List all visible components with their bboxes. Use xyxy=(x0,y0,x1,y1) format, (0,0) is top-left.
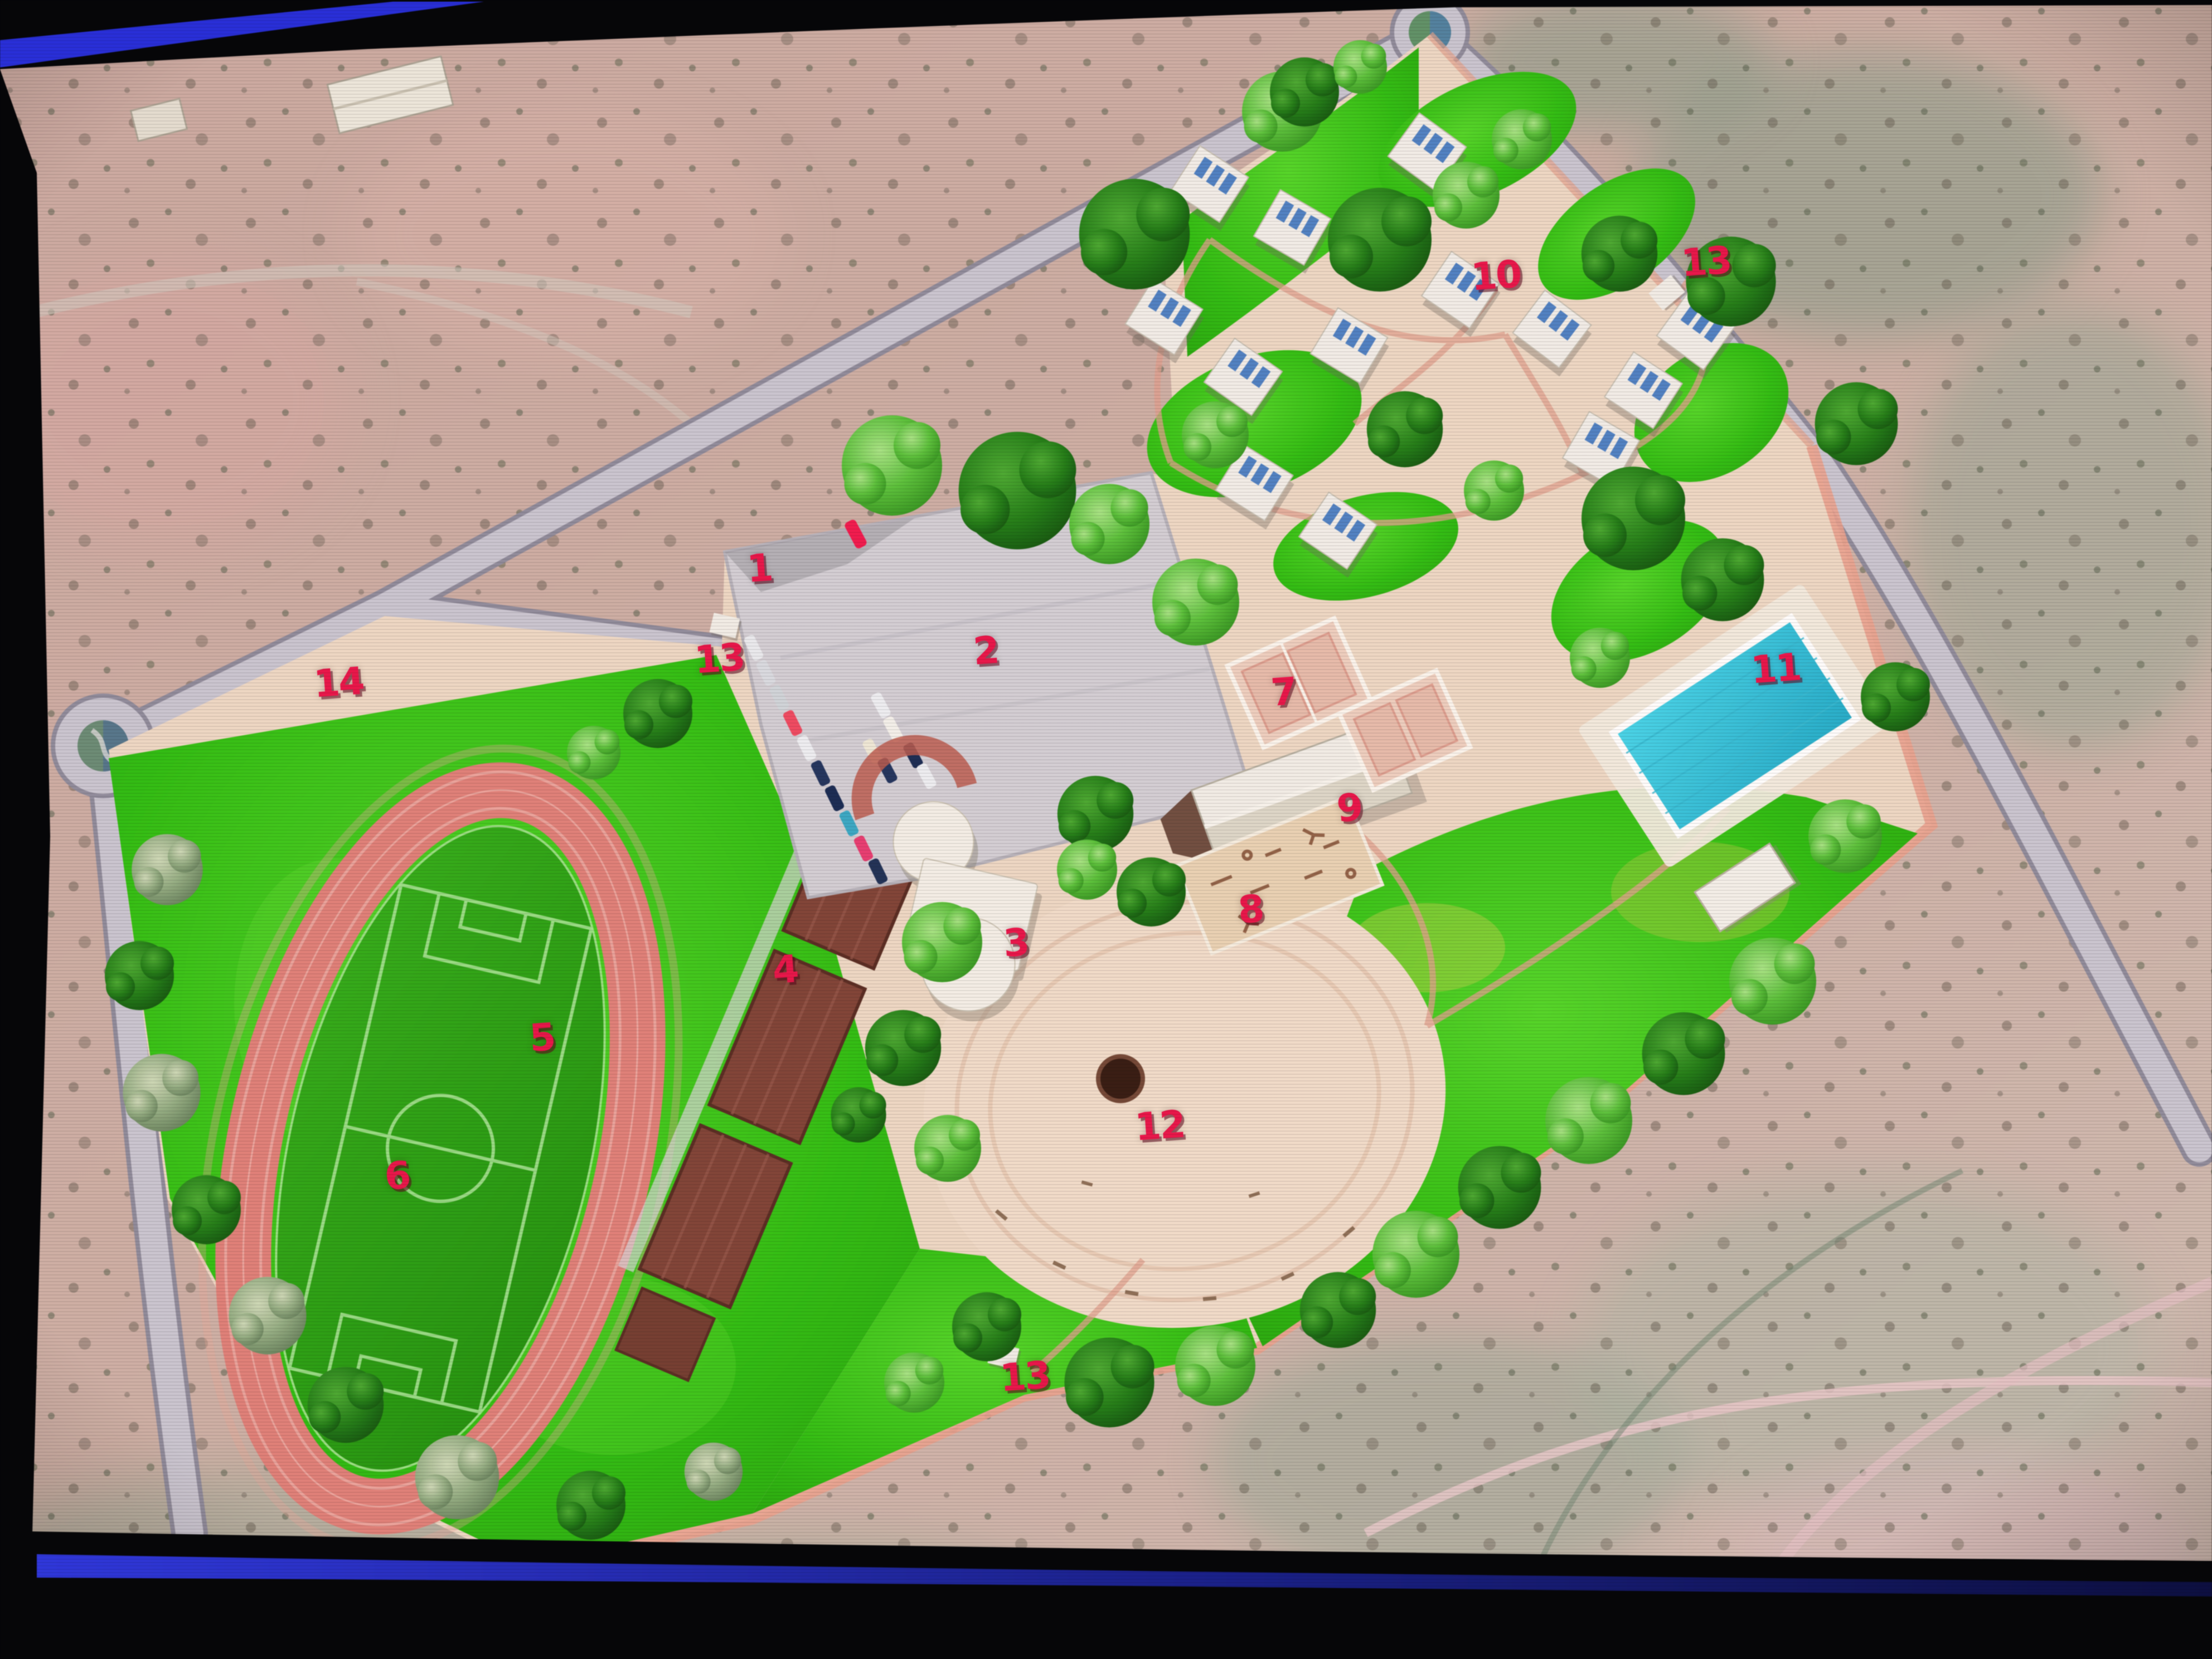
map-marker-13-south: 13 xyxy=(998,1354,1051,1401)
map-marker-11: 11 xyxy=(1749,646,1802,693)
map-marker-8: 8 xyxy=(1236,887,1264,933)
map-marker-1: 1 xyxy=(745,546,773,591)
map-marker-9: 9 xyxy=(1335,785,1363,831)
map-marker-12: 12 xyxy=(1133,1103,1186,1150)
map-marker-2: 2 xyxy=(972,628,1000,674)
map-marker-10: 10 xyxy=(1469,253,1522,300)
map-marker-14: 14 xyxy=(312,659,365,707)
map-marker-4: 4 xyxy=(771,947,799,993)
marker-layer: 1 2 3 4 5 6 7 8 9 10 11 12 13 13 13 14 xyxy=(0,0,2212,1659)
map-marker-13-west: 13 xyxy=(693,636,745,683)
photo-of-screen: 1 2 3 4 5 6 7 8 9 10 11 12 13 13 13 14 xyxy=(0,0,2212,1659)
map-marker-5: 5 xyxy=(528,1015,556,1061)
map-marker-6: 6 xyxy=(383,1153,411,1199)
map-marker-13-north: 13 xyxy=(1680,239,1732,286)
map-marker-7: 7 xyxy=(1269,670,1297,715)
map-marker-3: 3 xyxy=(1002,920,1030,966)
